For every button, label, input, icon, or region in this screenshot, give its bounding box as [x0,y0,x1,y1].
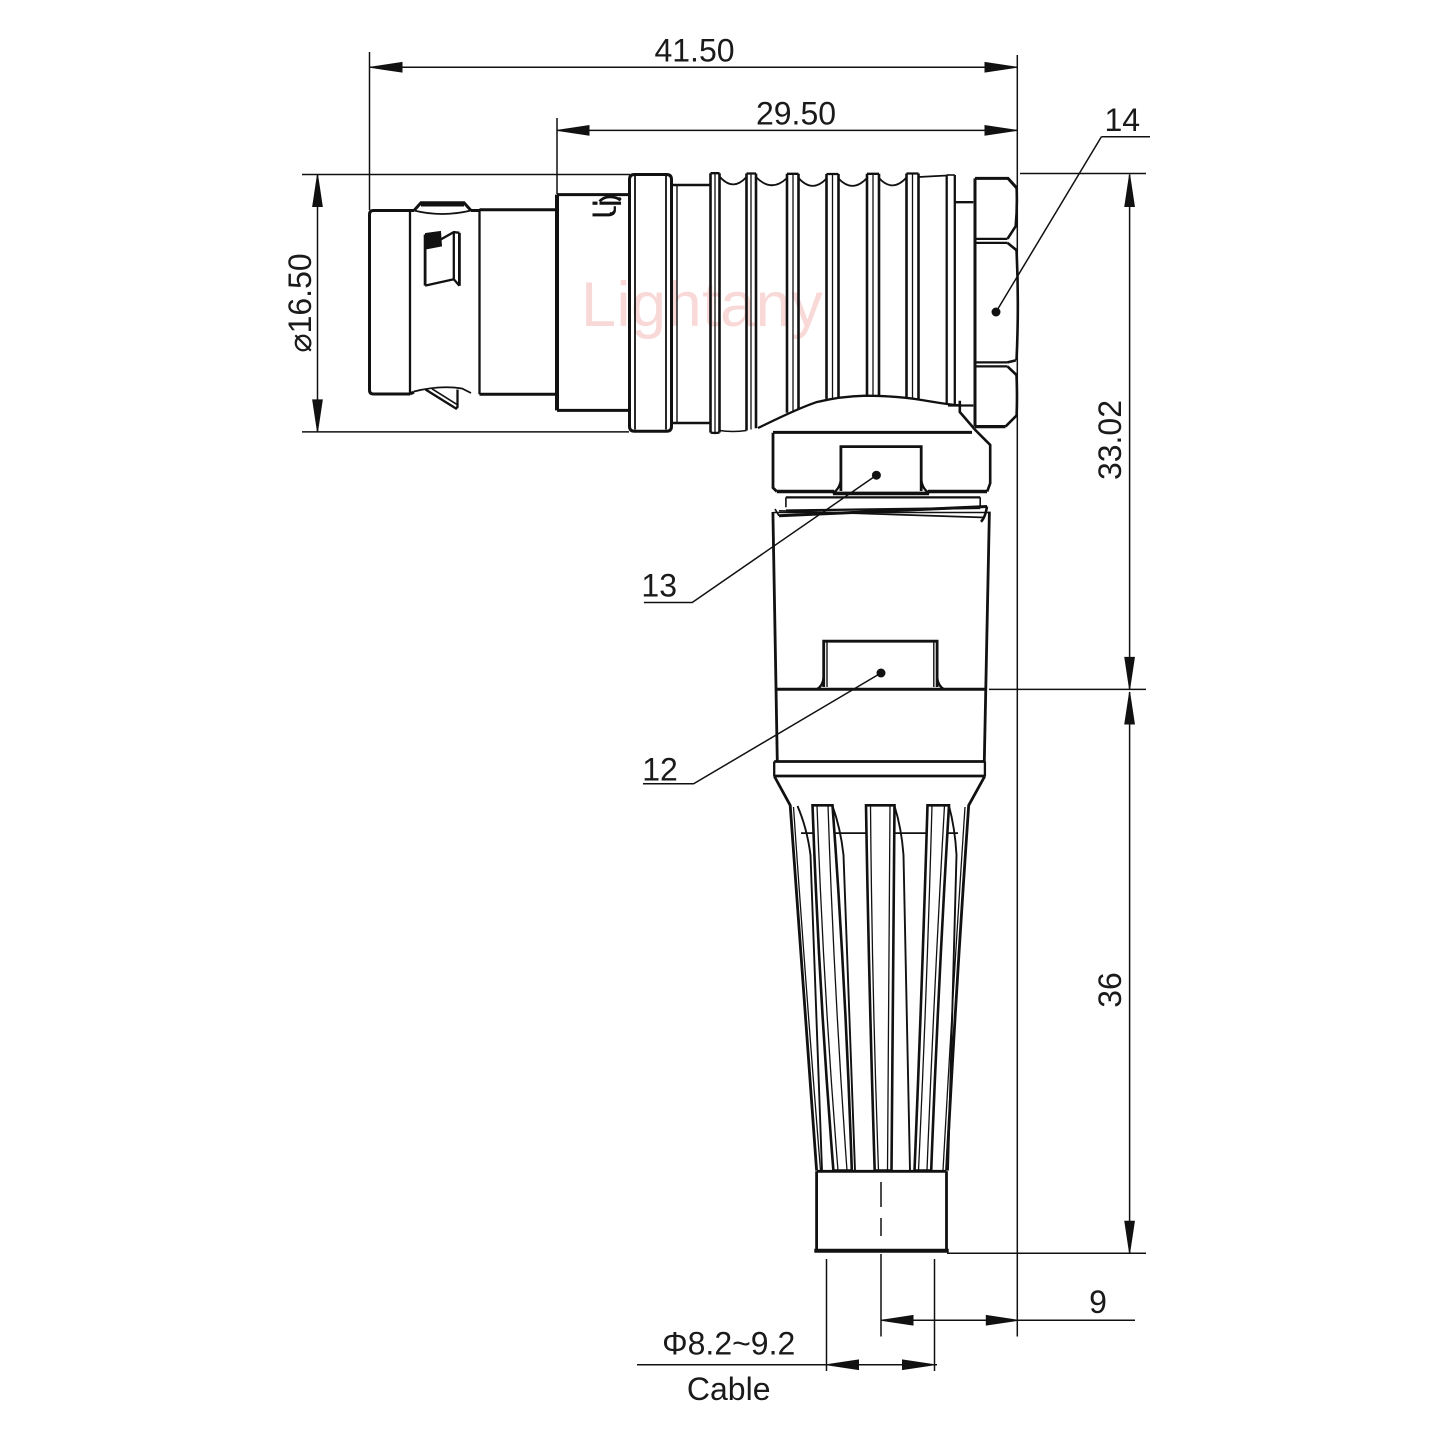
svg-text:29.50: 29.50 [756,95,836,131]
svg-text:41.50: 41.50 [654,33,734,69]
svg-text:36: 36 [1092,972,1128,1008]
svg-text:14: 14 [1105,102,1141,138]
svg-text:33.02: 33.02 [1092,400,1128,480]
svg-text:12: 12 [642,752,678,788]
svg-text:13: 13 [641,568,677,604]
svg-text:9: 9 [1089,1284,1107,1320]
svg-text:⌀16.50: ⌀16.50 [282,253,318,352]
svg-text:Cable: Cable [687,1371,771,1407]
svg-text:Φ8.2~9.2: Φ8.2~9.2 [662,1325,795,1361]
